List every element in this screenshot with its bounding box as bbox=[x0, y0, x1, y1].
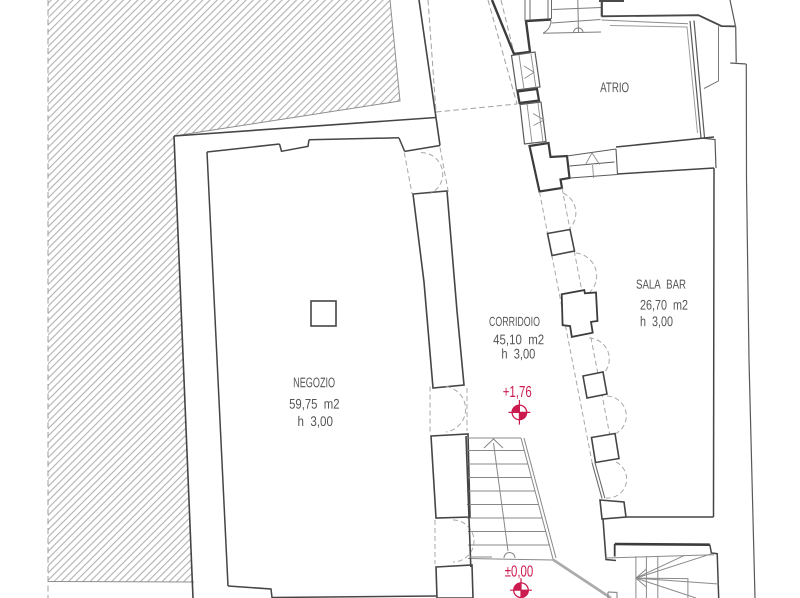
svg-text:+1,76: +1,76 bbox=[503, 384, 532, 401]
svg-text:ATRIO: ATRIO bbox=[600, 79, 629, 95]
svg-text:NEGOZIO: NEGOZIO bbox=[293, 374, 335, 390]
svg-text:±0,00: ±0,00 bbox=[505, 564, 534, 581]
svg-text:h 3,00: h 3,00 bbox=[501, 345, 535, 361]
svg-text:59,75 m2: 59,75 m2 bbox=[289, 396, 340, 412]
svg-text:h 3,00: h 3,00 bbox=[297, 413, 333, 429]
svg-text:h 3,00: h 3,00 bbox=[640, 313, 673, 329]
svg-text:26,70 m2: 26,70 m2 bbox=[640, 297, 688, 313]
svg-text:CORRIDOIO: CORRIDOIO bbox=[489, 314, 540, 329]
svg-text:SALA BAR: SALA BAR bbox=[636, 277, 686, 292]
